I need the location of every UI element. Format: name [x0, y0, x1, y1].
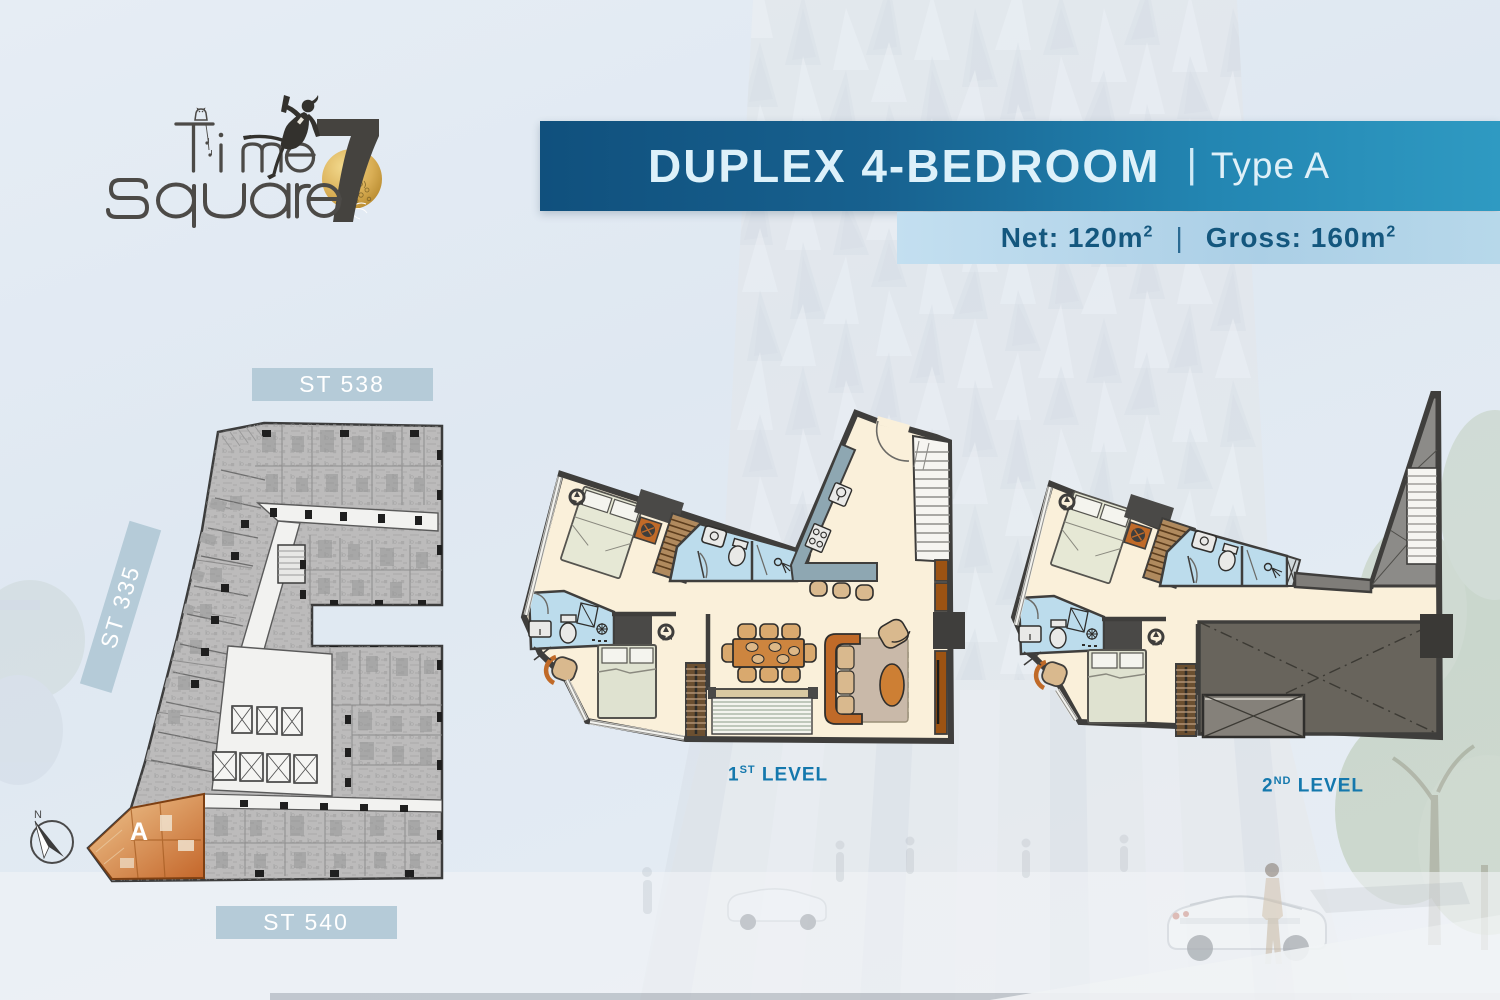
- svg-text:ST 538: ST 538: [299, 371, 385, 397]
- svg-text:A: A: [130, 818, 148, 846]
- svg-text:N: N: [34, 809, 42, 821]
- svg-text:ST 540: ST 540: [263, 909, 349, 935]
